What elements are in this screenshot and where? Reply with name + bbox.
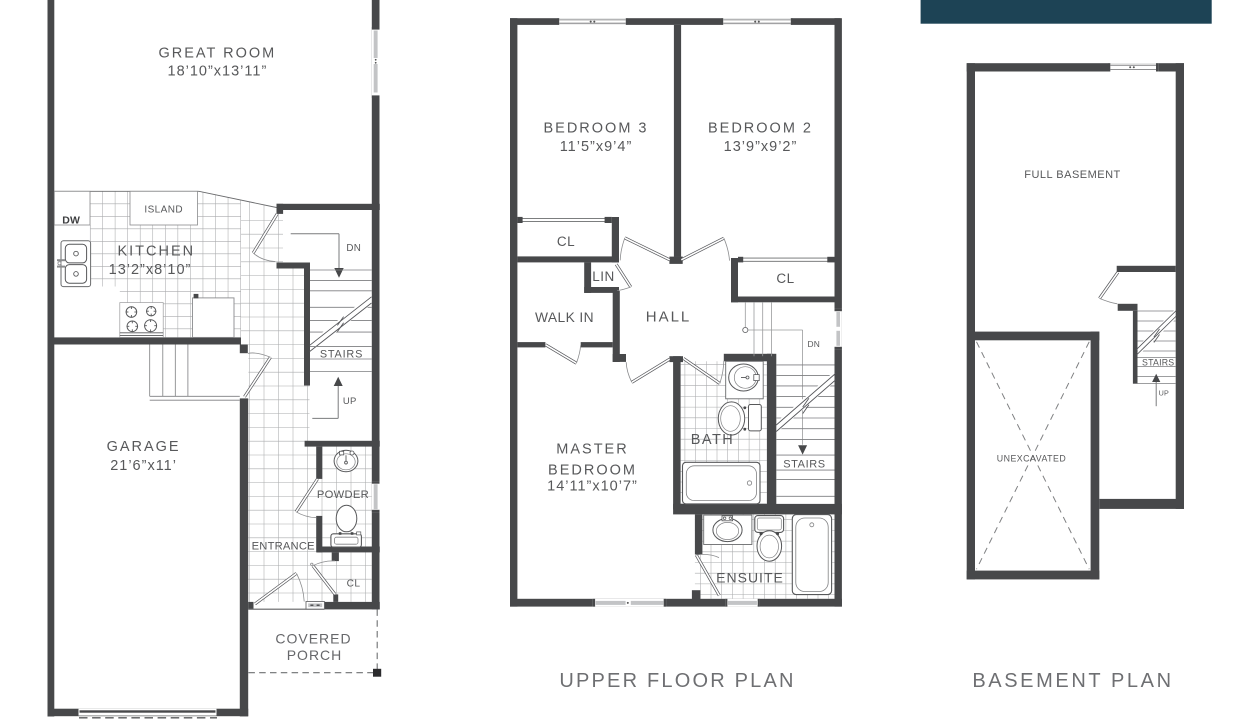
svg-text:DN: DN [346,243,361,254]
svg-text:BASEMENT PLAN: BASEMENT PLAN [972,670,1173,692]
svg-text:GARAGE: GARAGE [107,439,181,455]
svg-text:UP: UP [343,396,357,407]
svg-text:UNEXCAVATED: UNEXCAVATED [997,454,1067,464]
svg-text:POWDER: POWDER [317,489,369,501]
svg-text:DW: DW [62,215,80,227]
svg-text:CL: CL [776,271,794,286]
svg-text:STAIRS: STAIRS [320,348,363,360]
svg-text:BEDROOM 3: BEDROOM 3 [543,120,648,136]
svg-text:ISLAND: ISLAND [144,204,183,215]
svg-text:COVERED: COVERED [275,630,351,646]
svg-text:FULL BASEMENT: FULL BASEMENT [1024,169,1121,181]
svg-text:BEDROOM: BEDROOM [548,463,637,479]
svg-text:BATH: BATH [691,432,735,448]
svg-text:13’2”x8’10”: 13’2”x8’10” [109,262,192,278]
svg-text:GREAT ROOM: GREAT ROOM [159,46,277,62]
svg-text:STAIRS: STAIRS [1142,357,1174,367]
svg-text:UPPER FLOOR PLAN: UPPER FLOOR PLAN [559,670,795,692]
svg-text:STAIRS: STAIRS [783,458,826,470]
svg-text:21’6”x11’: 21’6”x11’ [110,458,177,474]
svg-text:ENSUITE: ENSUITE [716,570,784,586]
svg-text:PORCH: PORCH [287,647,343,663]
svg-text:18’10”x13’11”: 18’10”x13’11” [168,64,268,80]
svg-text:11’5”x9’4”: 11’5”x9’4” [560,139,633,155]
svg-text:13’9”x9’2”: 13’9”x9’2” [724,139,798,155]
svg-text:ENTRANCE: ENTRANCE [252,540,315,552]
svg-text:14’11”x10’7”: 14’11”x10’7” [547,478,638,494]
svg-text:CL: CL [557,234,575,249]
svg-text:BEDROOM 2: BEDROOM 2 [708,120,813,136]
svg-text:HALL: HALL [646,308,692,325]
svg-text:UP: UP [1159,389,1169,398]
svg-text:WALK IN: WALK IN [535,310,594,325]
svg-text:LIN: LIN [592,269,615,284]
svg-text:KITCHEN: KITCHEN [117,244,195,260]
svg-text:MASTER: MASTER [556,442,628,458]
svg-text:CL: CL [347,579,361,590]
svg-text:DN: DN [807,339,820,349]
